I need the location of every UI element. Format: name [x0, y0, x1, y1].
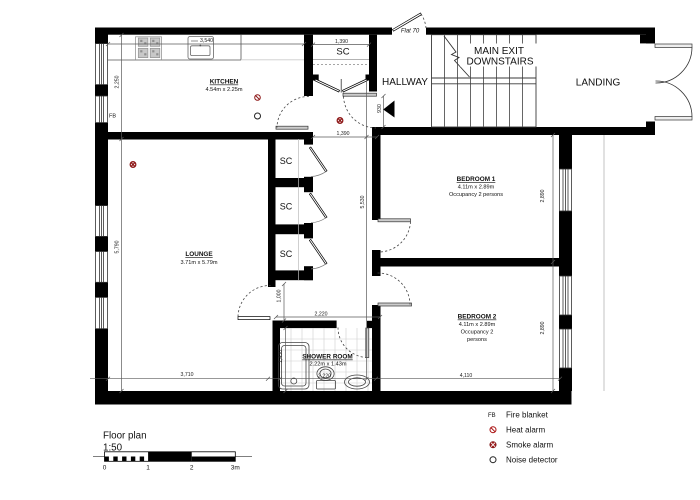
svg-text:persons: persons: [467, 337, 487, 343]
svg-text:2: 2: [190, 465, 194, 472]
svg-text:Smoke alarm: Smoke alarm: [506, 441, 553, 450]
svg-text:3,710: 3,710: [181, 372, 194, 378]
svg-text:Fire blanket: Fire blanket: [506, 411, 549, 420]
svg-text:930: 930: [377, 104, 383, 113]
svg-text:SC: SC: [280, 202, 293, 212]
svg-text:3m: 3m: [231, 465, 240, 472]
svg-text:1,390: 1,390: [335, 39, 348, 45]
svg-text:2,220: 2,220: [318, 374, 331, 380]
svg-text:4.11m x 2.89m: 4.11m x 2.89m: [458, 185, 495, 191]
svg-text:Heat alarm: Heat alarm: [506, 426, 545, 435]
svg-text:DOWNSTAIRS: DOWNSTAIRS: [466, 57, 533, 68]
svg-text:Noise detector: Noise detector: [506, 456, 558, 465]
svg-text:0: 0: [103, 465, 107, 472]
svg-text:HALLWAY: HALLWAY: [382, 77, 428, 88]
svg-text:SHOWER ROOM: SHOWER ROOM: [302, 354, 352, 361]
svg-text:SC: SC: [280, 156, 293, 166]
svg-text:2,890: 2,890: [540, 189, 546, 202]
svg-text:FB: FB: [488, 413, 496, 419]
svg-text:2,890: 2,890: [540, 321, 546, 334]
svg-text:Flat 70: Flat 70: [401, 29, 420, 35]
svg-text:2,250: 2,250: [115, 75, 121, 88]
svg-text:2.22m x 1.43m: 2.22m x 1.43m: [310, 362, 347, 368]
svg-text:Floor plan: Floor plan: [103, 431, 147, 442]
svg-text:3,540: 3,540: [200, 38, 213, 44]
svg-text:BEDROOM 2: BEDROOM 2: [458, 314, 497, 321]
svg-text:4.54m x 2.25m: 4.54m x 2.25m: [206, 87, 243, 93]
svg-text:5,790: 5,790: [115, 240, 121, 253]
svg-text:1,390: 1,390: [337, 131, 350, 137]
svg-text:2,220: 2,220: [315, 312, 328, 318]
svg-text:FB: FB: [109, 114, 116, 120]
svg-text:Occupancy 2 persons: Occupancy 2 persons: [449, 192, 503, 198]
svg-text:BEDROOM 1: BEDROOM 1: [457, 176, 496, 183]
svg-text:5,530: 5,530: [360, 195, 366, 208]
svg-text:MAIN EXIT: MAIN EXIT: [474, 46, 524, 57]
svg-text:1,430: 1,430: [278, 350, 284, 363]
svg-text:4.11m x 2.89m: 4.11m x 2.89m: [459, 322, 496, 328]
svg-text:LANDING: LANDING: [576, 78, 621, 89]
svg-text:LOUNGE: LOUNGE: [185, 251, 213, 258]
svg-text:1,000: 1,000: [277, 289, 283, 302]
svg-text:SC: SC: [280, 249, 293, 259]
svg-text:3.71m x 5.79m: 3.71m x 5.79m: [181, 260, 218, 266]
svg-text:1: 1: [146, 465, 150, 472]
svg-text:SC: SC: [336, 47, 349, 58]
svg-text:4,110: 4,110: [460, 373, 473, 379]
svg-text:KITCHEN: KITCHEN: [210, 79, 239, 86]
svg-text:Occupancy 2: Occupancy 2: [461, 330, 494, 336]
